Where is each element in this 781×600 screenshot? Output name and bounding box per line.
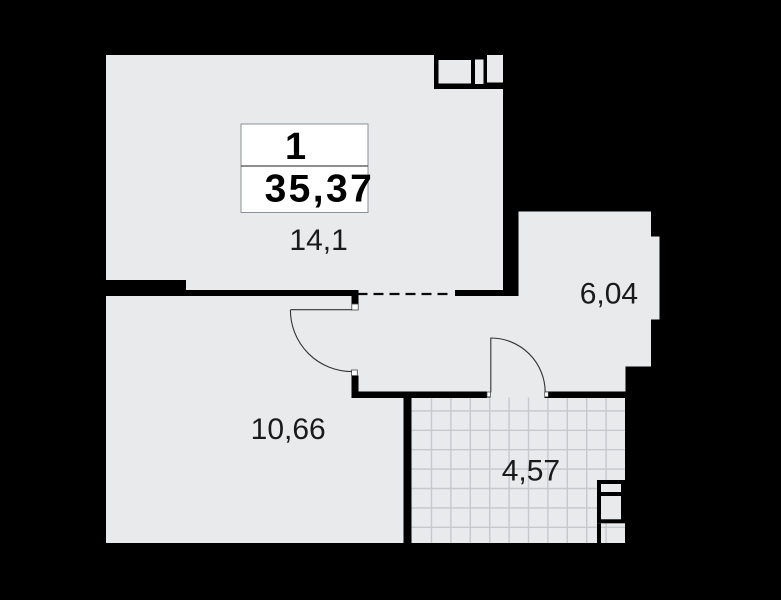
svg-text:4,57: 4,57 [502,454,560,487]
svg-text:14,1: 14,1 [289,224,347,257]
svg-text:35,37: 35,37 [265,167,375,210]
svg-text:6,04: 6,04 [580,277,638,310]
svg-text:1: 1 [285,126,306,168]
svg-text:10,66: 10,66 [251,413,326,446]
